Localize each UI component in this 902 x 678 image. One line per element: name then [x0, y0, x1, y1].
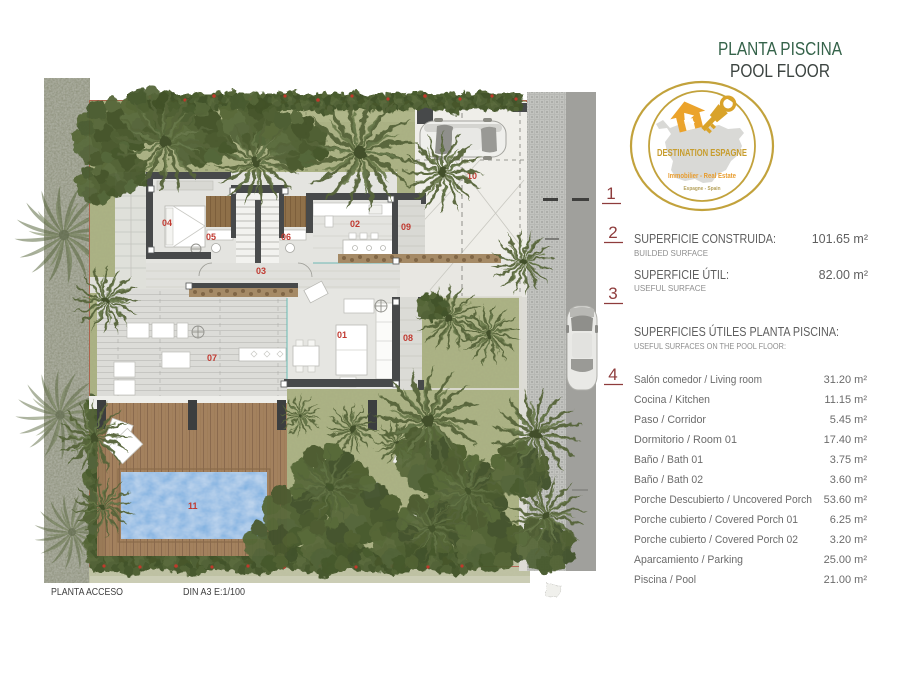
svg-text:3.60 m²: 3.60 m² [830, 474, 868, 486]
svg-text:BUILDED SURFACE: BUILDED SURFACE [634, 248, 708, 258]
svg-text:05: 05 [206, 232, 216, 242]
svg-text:PLANTA PISCINA: PLANTA PISCINA [718, 39, 842, 59]
svg-text:101.65 m²: 101.65 m² [812, 232, 868, 246]
svg-text:1: 1 [606, 184, 615, 203]
svg-text:Salón comedor / Living room: Salón comedor / Living room [634, 374, 762, 386]
svg-text:21.00 m²: 21.00 m² [824, 574, 868, 586]
svg-text:17.40 m²: 17.40 m² [824, 434, 868, 446]
svg-text:3.20 m²: 3.20 m² [830, 534, 868, 546]
svg-text:6.25 m²: 6.25 m² [830, 514, 868, 526]
svg-text:Cocina / Kitchen: Cocina / Kitchen [634, 394, 710, 406]
svg-text:Espagne - Spain: Espagne - Spain [684, 186, 722, 192]
svg-text:02: 02 [350, 219, 360, 229]
svg-text:25.00 m²: 25.00 m² [824, 554, 868, 566]
svg-text:08: 08 [403, 333, 413, 343]
svg-text:POOL FLOOR: POOL FLOOR [730, 61, 830, 81]
svg-text:4: 4 [608, 365, 617, 384]
svg-text:3.75 m²: 3.75 m² [830, 454, 868, 466]
svg-text:2: 2 [608, 223, 617, 242]
svg-text:11: 11 [188, 501, 198, 511]
svg-text:DIN A3 E:1/100: DIN A3 E:1/100 [183, 586, 245, 598]
svg-text:Dormitorio / Room 01: Dormitorio / Room 01 [634, 434, 737, 446]
svg-text:04: 04 [162, 218, 172, 228]
svg-text:Baño / Bath 01: Baño / Bath 01 [634, 454, 703, 466]
svg-text:SUPERFICIE ÚTIL:: SUPERFICIE ÚTIL: [634, 267, 729, 282]
svg-text:Baño / Bath 02: Baño / Bath 02 [634, 474, 703, 486]
svg-text:USEFUL SURFACE: USEFUL SURFACE [634, 283, 706, 293]
svg-text:82.00 m²: 82.00 m² [819, 268, 868, 282]
svg-text:11.15 m²: 11.15 m² [824, 394, 867, 406]
svg-text:SUPERFICIE CONSTRUIDA:: SUPERFICIE CONSTRUIDA: [634, 232, 776, 246]
svg-text:USEFUL SURFACES ON THE POOL FL: USEFUL SURFACES ON THE POOL FLOOR: [634, 341, 786, 351]
svg-text:DESTINATION ESPAGNE: DESTINATION ESPAGNE [657, 148, 747, 159]
svg-text:09: 09 [401, 222, 411, 232]
svg-text:Paso / Corridor: Paso / Corridor [634, 414, 706, 426]
svg-text:Piscina / Pool: Piscina / Pool [634, 574, 696, 586]
svg-text:5.45 m²: 5.45 m² [830, 414, 868, 426]
svg-text:Porche cubierto / Covered Porc: Porche cubierto / Covered Porch 01 [634, 514, 798, 526]
svg-text:Porche cubierto / Covered Porc: Porche cubierto / Covered Porch 02 [634, 534, 798, 546]
svg-text:SUPERFICIES ÚTILES PLANTA PISC: SUPERFICIES ÚTILES PLANTA PISCINA: [634, 324, 839, 339]
svg-text:53.60 m²: 53.60 m² [824, 494, 868, 506]
svg-text:Porche Descubierto / Uncovered: Porche Descubierto / Uncovered Porch [634, 494, 812, 506]
svg-text:07: 07 [207, 353, 217, 363]
svg-text:01: 01 [337, 330, 347, 340]
svg-text:03: 03 [256, 266, 266, 276]
svg-text:3: 3 [608, 284, 617, 303]
svg-text:Immobilier - Real Estate: Immobilier - Real Estate [668, 173, 736, 180]
svg-text:31.20 m²: 31.20 m² [824, 374, 868, 386]
svg-text:PLANTA ACCESO: PLANTA ACCESO [51, 586, 123, 598]
svg-text:Aparcamiento / Parking: Aparcamiento / Parking [634, 554, 743, 566]
svg-text:06: 06 [281, 232, 291, 242]
